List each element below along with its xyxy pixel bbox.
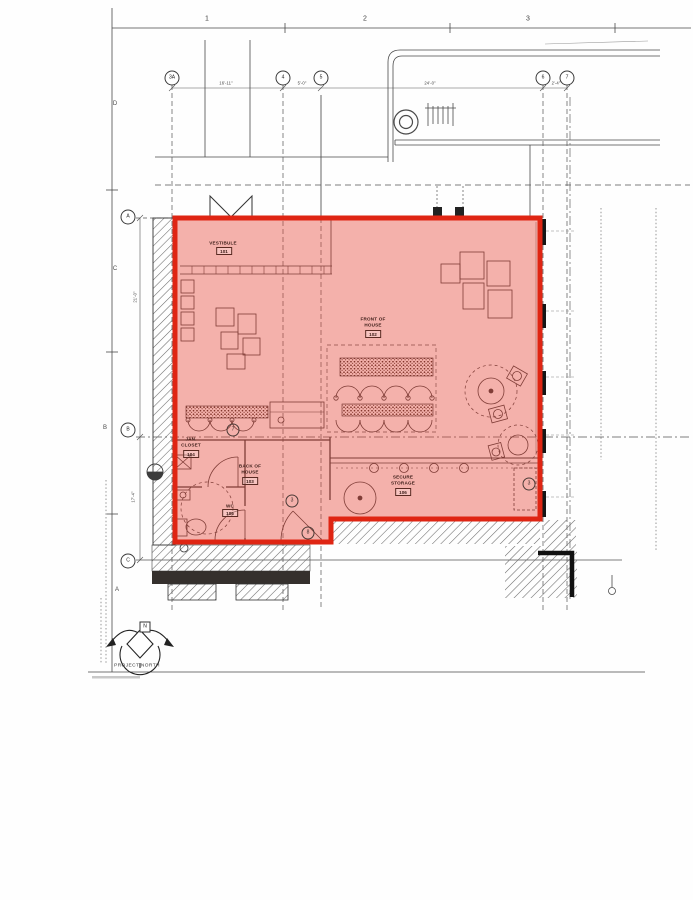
ruler-number-3: 3 — [526, 16, 530, 23]
grid-bubble-c: C — [121, 554, 136, 569]
border-letter-d: D — [113, 101, 117, 107]
dimension-top-4: 2'-4" — [552, 81, 561, 86]
room-label-vestibule: VESTIBULE — [201, 240, 245, 246]
plan-linework — [0, 0, 693, 900]
room-label-back-of-house: BACK OF HOUSE — [237, 464, 263, 475]
room-number-back-of-house: 103 — [242, 477, 258, 485]
keynote-tag: 8 — [302, 527, 315, 540]
grid-bubble-4: 4 — [276, 71, 291, 86]
room-label-jan-closet: JAN. CLOSET — [180, 437, 202, 448]
room-number-front-of-house: 102 — [365, 330, 381, 338]
highlighted-area — [175, 218, 540, 542]
keynote-tag: 7 — [227, 424, 240, 437]
grid-bubble-b: B — [121, 423, 136, 438]
grid-bubble-7: 7 — [560, 71, 575, 86]
keynote-tag: 3 — [286, 495, 299, 508]
floor-plan-sheet: 1 2 3 D C B A 3A 4 5 6 7 A B C 16'-11" 5… — [0, 0, 693, 900]
dimension-left-2: 17'-4" — [131, 491, 136, 502]
room-label-wc: WC — [220, 503, 240, 509]
room-number-wc: 105 — [222, 509, 238, 517]
ruler-number-2: 2 — [363, 16, 367, 23]
room-number-secure-storage: 106 — [395, 488, 411, 496]
border-letter-b: B — [103, 425, 107, 431]
room-number-vestibule: 101 — [216, 247, 232, 255]
grid-bubble-6: 6 — [536, 71, 551, 86]
north-letter: N — [140, 622, 151, 633]
grid-bubble-a: A — [121, 210, 136, 225]
room-label-front-of-house: FRONT OF HOUSE — [360, 317, 386, 328]
dimension-top-3: 24'-0" — [424, 81, 435, 86]
project-north-label: PROJECT NORTH — [114, 664, 160, 669]
dimension-top-1: 16'-11" — [219, 81, 232, 86]
room-label-secure-storage: SECURE STORAGE — [388, 475, 418, 486]
grid-bubble-3a: 3A — [165, 71, 180, 86]
border-letter-c: C — [113, 266, 117, 272]
dimension-top-2: 5'-0" — [298, 81, 307, 86]
grid-bubble-5: 5 — [314, 71, 329, 86]
keynote-tag: 3 — [523, 478, 536, 491]
border-letter-a: A — [115, 587, 119, 593]
dimension-left-1: 21'-0" — [133, 291, 138, 302]
ruler-number-1: 1 — [205, 16, 209, 23]
room-number-jan-closet: 104 — [183, 450, 199, 458]
